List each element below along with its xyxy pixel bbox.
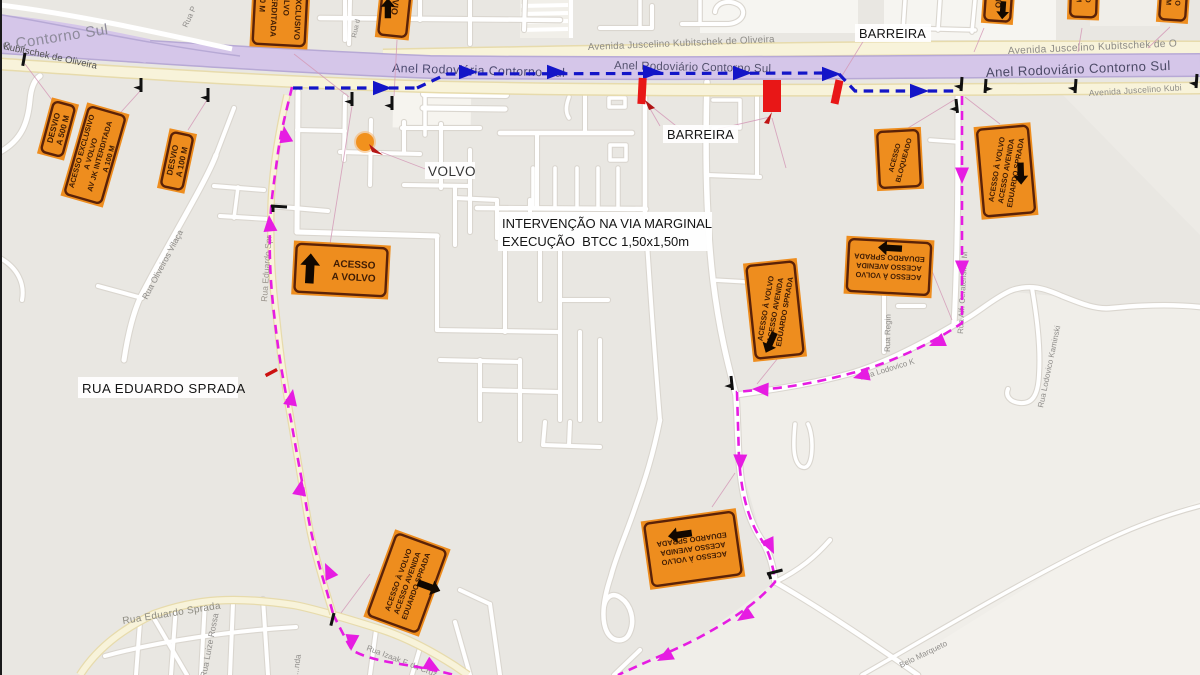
svg-text:VOLVO: VOLVO [428, 164, 476, 179]
svg-text:INTERVENÇÃO NA VIA MARGINAL: INTERVENÇÃO NA VIA MARGINAL [502, 216, 712, 231]
svg-text:BARREIRA: BARREIRA [859, 26, 926, 41]
svg-text:Rua Regin: Rua Regin [883, 314, 893, 352]
svg-text:DESVIO: DESVIO [1173, 0, 1184, 7]
svg-text:EXECUÇÃO BTCC 1,50x1,50m: EXECUÇÃO BTCC 1,50x1,50m [502, 234, 689, 249]
svg-text:RUA EDUARDO SPRADA: RUA EDUARDO SPRADA [82, 381, 246, 396]
svg-text:A 500 M: A 500 M [1164, 0, 1175, 5]
svg-text:A 100 M: A 100 M [1075, 0, 1085, 2]
svg-text:BARREIRA: BARREIRA [667, 127, 734, 142]
svg-text:A 100 M: A 100 M [257, 0, 268, 13]
svg-text:A VOLVO: A VOLVO [331, 272, 376, 285]
svg-text:ACESSO: ACESSO [333, 259, 376, 272]
svg-text:A VOLVO: A VOLVO [281, 0, 292, 16]
